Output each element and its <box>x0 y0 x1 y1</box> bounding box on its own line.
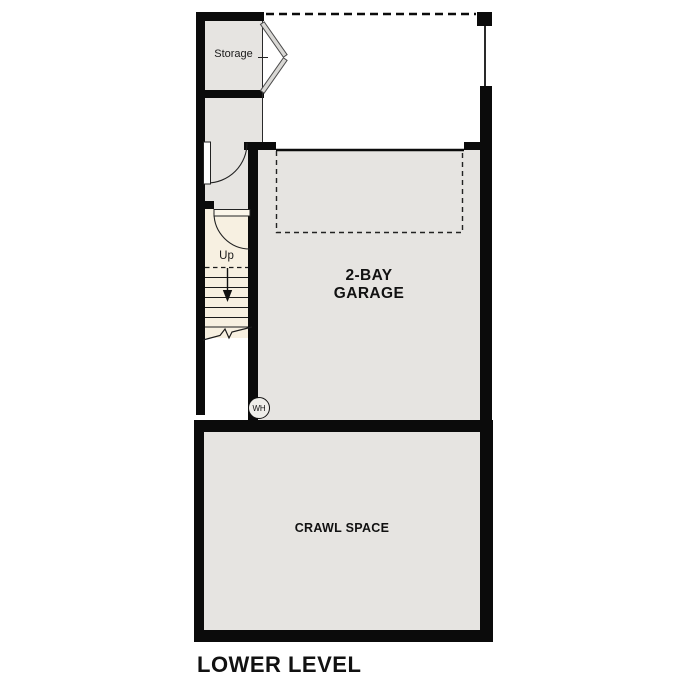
plan-linework <box>0 0 687 687</box>
stairs-up-label: Up <box>205 250 248 262</box>
stair-direction-arrow <box>223 268 232 302</box>
storage-room-label: Storage <box>205 48 262 60</box>
floor-plan: WH Storage Up 2-BAY GARAGE CRAWL SPACE L… <box>0 0 687 687</box>
stair-break-line <box>203 327 252 340</box>
crawl-space-label: CRAWL SPACE <box>204 521 480 535</box>
entry-door <box>204 142 248 184</box>
garage-overhead-dashed-outline <box>277 151 463 233</box>
storage-double-door <box>258 22 287 93</box>
water-heater-symbol: WH <box>248 397 270 419</box>
water-heater-label: WH <box>253 404 266 413</box>
garage-room-label: 2-BAY GARAGE <box>258 267 480 303</box>
stair-treads <box>205 278 248 328</box>
page-title: LOWER LEVEL <box>197 652 361 678</box>
stair-door <box>214 210 250 250</box>
